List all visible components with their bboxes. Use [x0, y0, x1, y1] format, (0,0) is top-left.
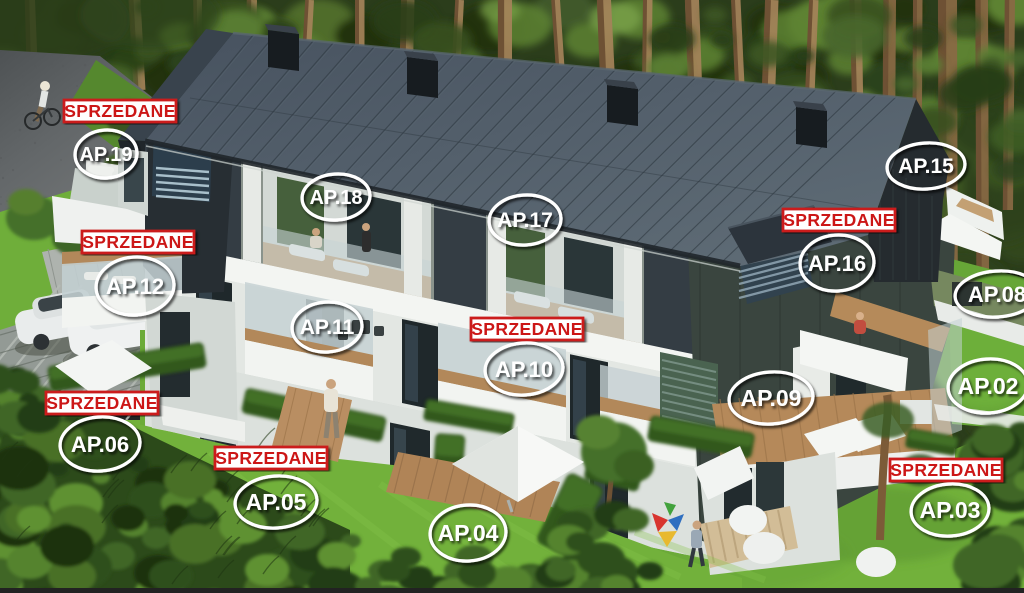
- svg-text:AP.02: AP.02: [958, 373, 1019, 399]
- svg-text:AP.18: AP.18: [309, 187, 362, 209]
- svg-text:SPRZEDANE: SPRZEDANE: [471, 319, 583, 339]
- svg-text:AP.06: AP.06: [71, 432, 129, 457]
- svg-text:AP.05: AP.05: [246, 489, 307, 515]
- svg-text:AP.12: AP.12: [106, 274, 164, 299]
- svg-text:AP.10: AP.10: [495, 357, 553, 382]
- svg-text:AP.03: AP.03: [920, 497, 981, 523]
- svg-text:SPRZEDANE: SPRZEDANE: [783, 210, 895, 230]
- svg-text:SPRZEDANE: SPRZEDANE: [64, 101, 176, 121]
- svg-text:SPRZEDANE: SPRZEDANE: [82, 232, 194, 252]
- svg-text:AP.11: AP.11: [300, 316, 355, 339]
- svg-text:SPRZEDANE: SPRZEDANE: [890, 460, 1002, 480]
- svg-text:AP.19: AP.19: [79, 144, 132, 166]
- svg-text:AP.16: AP.16: [808, 251, 866, 276]
- svg-text:AP.09: AP.09: [741, 385, 802, 411]
- svg-text:AP.17: AP.17: [497, 209, 553, 232]
- svg-text:AP.15: AP.15: [898, 155, 954, 178]
- svg-text:SPRZEDANE: SPRZEDANE: [46, 393, 158, 413]
- svg-text:AP.04: AP.04: [438, 520, 499, 546]
- svg-text:SPRZEDANE: SPRZEDANE: [215, 448, 327, 468]
- svg-text:AP.08: AP.08: [968, 282, 1024, 307]
